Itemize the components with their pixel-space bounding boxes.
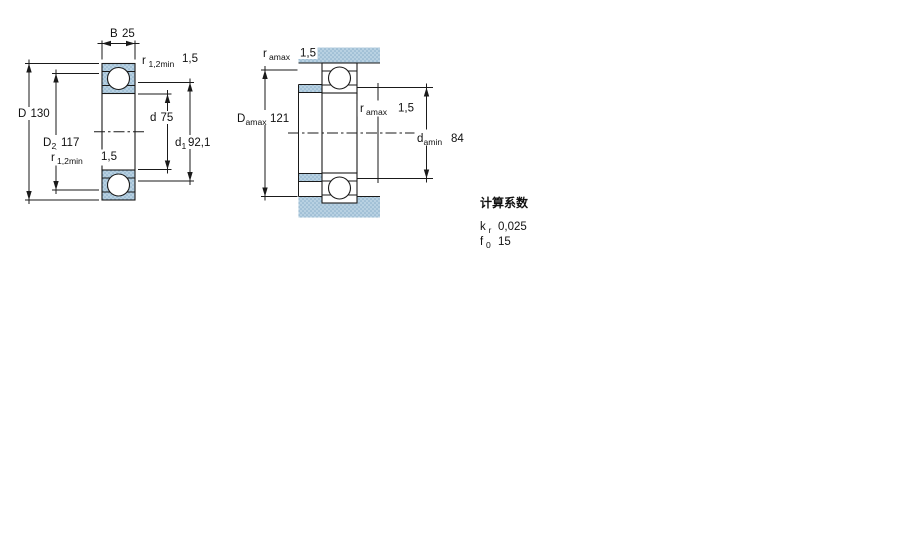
dim-label-r12bot-value: 1,5 <box>101 151 117 163</box>
dim-label-D2-symbol: D <box>43 137 51 149</box>
shaft-shoulder-upper <box>299 85 323 93</box>
dim-label-da-symbol: d <box>417 133 423 145</box>
ext-line-D <box>25 64 99 201</box>
dim-label-da-value: 84 <box>451 133 464 145</box>
housing-shoulder-left <box>299 197 323 218</box>
dim-label-d1-sub: 1 <box>182 141 187 151</box>
dim-label-ratop-sub: amax <box>269 52 291 62</box>
dim-label-ratop-symbol: r <box>263 48 267 60</box>
dim-label-raside-symbol: r <box>360 103 364 115</box>
calc-factor-f0-value: 15 <box>498 236 511 248</box>
left-section-view: B 25 r 1,2min 1,5 D 130 D 2 117 d 75 d 1… <box>16 28 217 204</box>
dim-label-r12top-symbol: r <box>142 55 146 67</box>
calc-factor-kr-sub: r <box>489 225 492 235</box>
dim-label-Da-sub: amax <box>246 117 268 127</box>
left-view-labels: B 25 r 1,2min 1,5 D 130 D 2 117 d 75 d 1… <box>16 28 217 166</box>
calc-factor-kr-symbol: k <box>480 221 486 233</box>
dim-label-r12bot-symbol: r <box>51 152 55 164</box>
ball-upper-icon <box>108 68 130 90</box>
dim-label-D-value: 130 <box>31 108 50 120</box>
calc-factors-title: 计算系数 <box>480 195 529 210</box>
ext-line-D2 <box>52 74 99 191</box>
bearing-drawing-page: B 25 r 1,2min 1,5 D 130 D 2 117 d 75 d 1… <box>0 0 900 560</box>
dim-label-D2-value: 117 <box>61 137 79 149</box>
calc-factor-kr-value: 0,025 <box>498 221 527 233</box>
calculation-factors: 计算系数 k r 0,025 f 0 15 <box>480 195 529 250</box>
ball-upper-icon <box>329 67 351 89</box>
dim-label-d1-symbol: d <box>175 137 181 149</box>
ball-lower-icon <box>108 174 130 196</box>
dim-label-raside-value: 1,5 <box>398 103 414 115</box>
dim-label-B-value: 25 <box>122 28 135 40</box>
dim-label-B-symbol: B <box>110 28 118 40</box>
dim-label-r12bot-sub: 1,2min <box>57 156 83 166</box>
housing-shoulder-right <box>357 197 380 218</box>
dim-label-r12top-sub: 1,2min <box>149 59 175 69</box>
dim-label-d1-value: 92,1 <box>188 137 210 149</box>
ball-lower-icon <box>329 177 351 199</box>
shaft-shoulder-lower <box>299 174 323 182</box>
dim-label-da-sub: amin <box>424 137 443 147</box>
dim-label-d-value: 75 <box>161 112 174 124</box>
calc-factor-f0-symbol: f <box>480 236 484 248</box>
dim-label-Da-value: 121 <box>270 113 289 125</box>
dim-label-raside-sub: amax <box>366 107 388 117</box>
housing-bottom-band <box>322 203 357 218</box>
dim-label-d-symbol: d <box>150 112 156 124</box>
dim-label-ratop-value: 1,5 <box>300 48 316 60</box>
shaft <box>299 85 323 197</box>
right-mounting-view: r amax 1,5 D amax 121 r amax 1,5 d amin … <box>235 47 468 218</box>
ext-line-d1 <box>138 83 194 182</box>
bearing-dimension-figure: B 25 r 1,2min 1,5 D 130 D 2 117 d 75 d 1… <box>0 0 900 560</box>
dim-label-D-symbol: D <box>18 108 26 120</box>
dim-label-r12top-value: 1,5 <box>182 53 198 65</box>
calc-factor-f0-sub: 0 <box>486 240 491 250</box>
dim-label-Da-symbol: D <box>237 113 245 125</box>
